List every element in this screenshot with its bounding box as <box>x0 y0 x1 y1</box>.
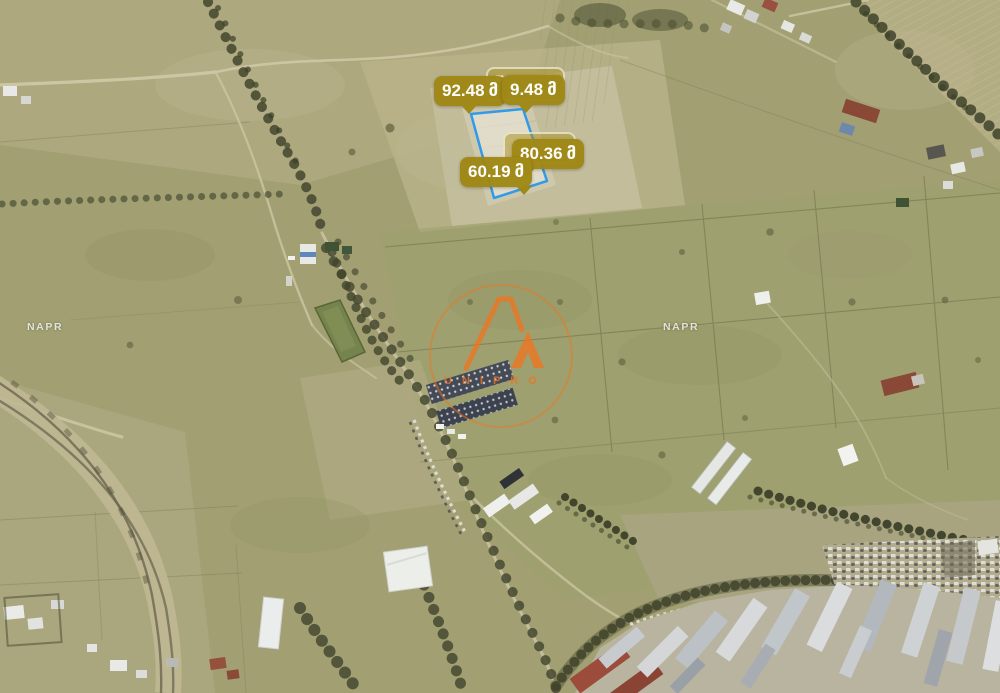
length-unit: მ <box>567 144 577 163</box>
napr-watermark: NAPR <box>663 321 699 333</box>
map-canvas[interactable]: UNIPRO 5 92.48მ 9.48მ 80.36მ 60.19მ NAPR… <box>0 0 1000 693</box>
length-value: 60.19 <box>468 162 511 181</box>
length-value: 92.48 <box>442 81 485 100</box>
side-length-label-west: 92.48მ <box>434 76 506 106</box>
length-unit: მ <box>489 81 499 100</box>
length-value: 9.48 <box>510 80 543 99</box>
side-length-label-south: 60.19მ <box>460 157 532 187</box>
length-unit: მ <box>515 162 525 181</box>
length-unit: მ <box>547 80 557 99</box>
side-length-label-north: 9.48მ <box>502 75 565 105</box>
napr-watermark: NAPR <box>27 321 63 333</box>
